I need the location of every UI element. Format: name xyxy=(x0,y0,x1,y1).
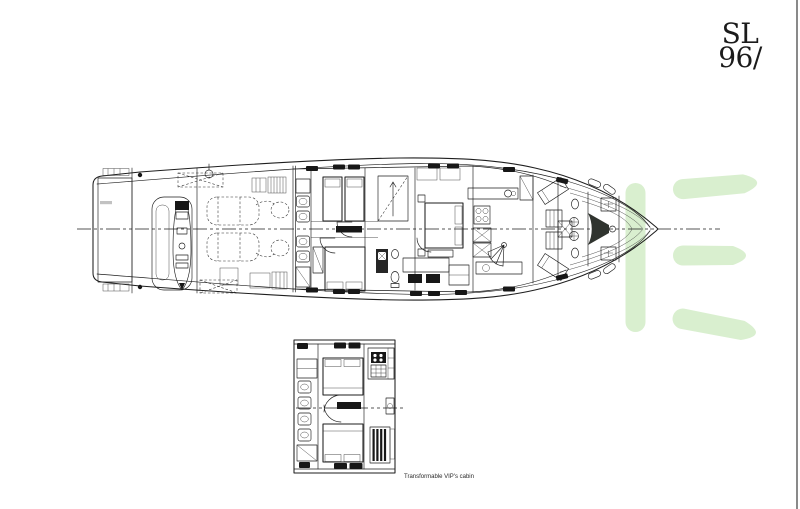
staircase xyxy=(378,176,408,221)
green-watermark xyxy=(626,173,759,343)
detail-cabin-top xyxy=(323,358,363,395)
detail-stairs xyxy=(370,427,395,463)
tender-garage xyxy=(132,164,213,293)
detail-corridor xyxy=(296,395,403,422)
yacht-deck-plan-drawing: Transformable VIP's cabin xyxy=(0,0,800,509)
corridor-console xyxy=(336,226,362,233)
vip-cabin xyxy=(403,168,469,285)
engine-room xyxy=(178,173,289,293)
davit-crane xyxy=(205,170,213,178)
toilet xyxy=(391,272,399,283)
watermark-lobe-top xyxy=(672,173,758,200)
cleat xyxy=(602,183,616,195)
engine-room-stairs xyxy=(220,268,238,285)
watermark-lobe-middle xyxy=(673,246,746,266)
detail-galley-block xyxy=(368,348,394,414)
tender-boat xyxy=(173,201,191,290)
main-deck-plan xyxy=(77,158,720,300)
toilet xyxy=(572,248,579,258)
vip-bathroom xyxy=(376,249,399,288)
door-arc xyxy=(320,238,335,253)
double-bed xyxy=(325,247,365,291)
swim-platform xyxy=(98,169,132,292)
galley-sink xyxy=(505,190,512,197)
page: SL 96/ xyxy=(0,0,800,509)
vip-bed xyxy=(425,203,463,248)
cleat xyxy=(587,270,601,280)
stove xyxy=(474,206,490,224)
engine-port xyxy=(207,197,289,225)
galley xyxy=(468,176,533,274)
guest-bathrooms xyxy=(296,179,310,287)
engine-starboard xyxy=(207,233,289,261)
cleat xyxy=(602,263,616,275)
detail-plan-caption: Transformable VIP's cabin xyxy=(404,474,474,480)
detail-bed-bottom xyxy=(323,424,363,462)
single-bed xyxy=(323,177,342,221)
vip-sofa xyxy=(403,258,469,285)
chain-locker xyxy=(588,213,609,245)
detail-console xyxy=(337,402,361,409)
watermark-lobe-bottom xyxy=(671,307,758,343)
cleat xyxy=(587,178,601,188)
detail-plan: Transformable VIP's cabin xyxy=(294,340,474,480)
platform-label-smudge xyxy=(100,201,112,204)
watermark-bar xyxy=(626,183,646,332)
detail-cabin-bottom xyxy=(323,424,363,462)
toilet xyxy=(572,199,579,209)
passerelle xyxy=(156,205,169,280)
guest-cabin-double xyxy=(313,238,365,291)
detail-bathrooms xyxy=(297,359,317,461)
single-bed xyxy=(345,177,364,221)
sink xyxy=(392,250,399,259)
detail-bed-top xyxy=(323,358,363,395)
